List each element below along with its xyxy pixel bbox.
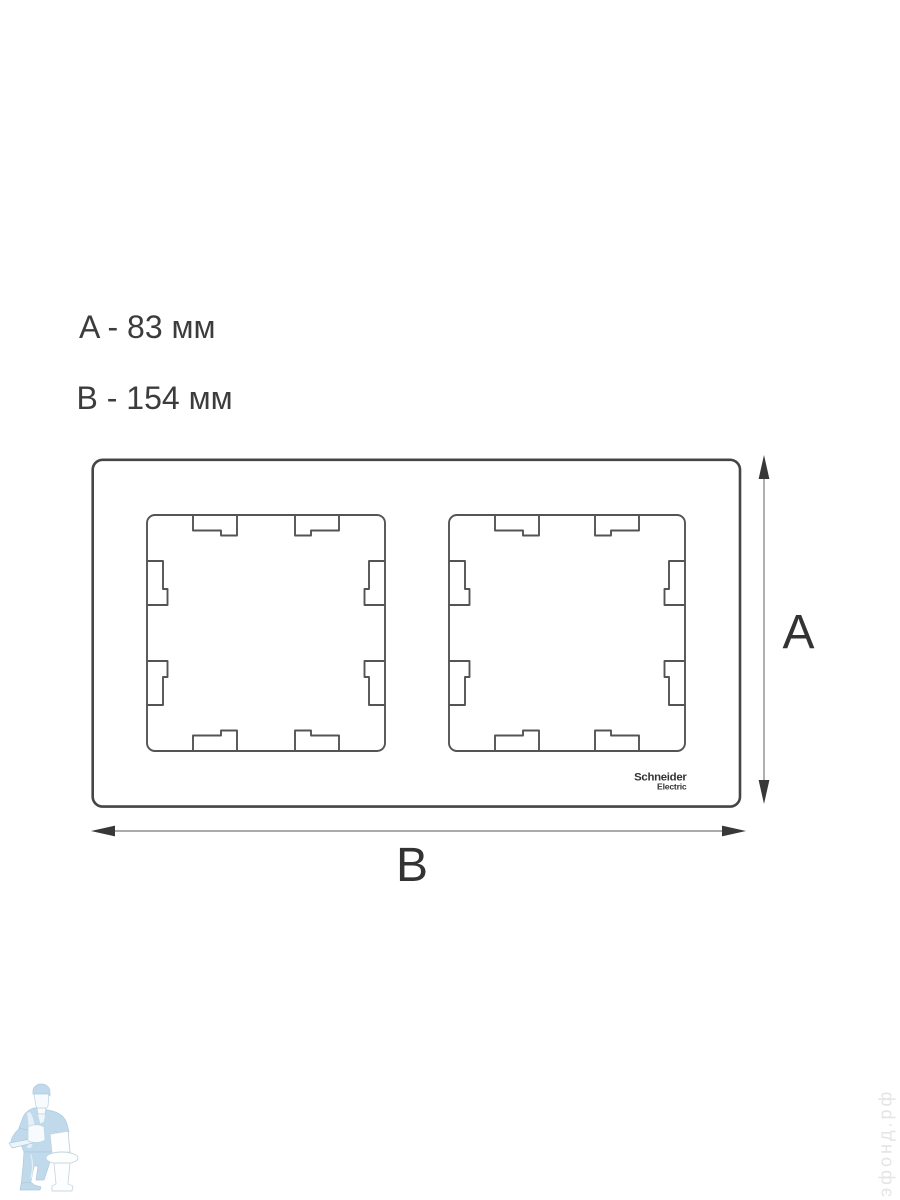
svg-text:Electric: Electric bbox=[657, 782, 687, 792]
svg-text:эфонд.рф: эфонд.рф bbox=[876, 1089, 896, 1197]
svg-text:A: A bbox=[783, 606, 815, 659]
svg-text:B: B bbox=[396, 839, 428, 892]
svg-text:B - 154 мм: B - 154 мм bbox=[77, 380, 233, 416]
svg-text:A - 83 мм: A - 83 мм bbox=[79, 309, 216, 345]
